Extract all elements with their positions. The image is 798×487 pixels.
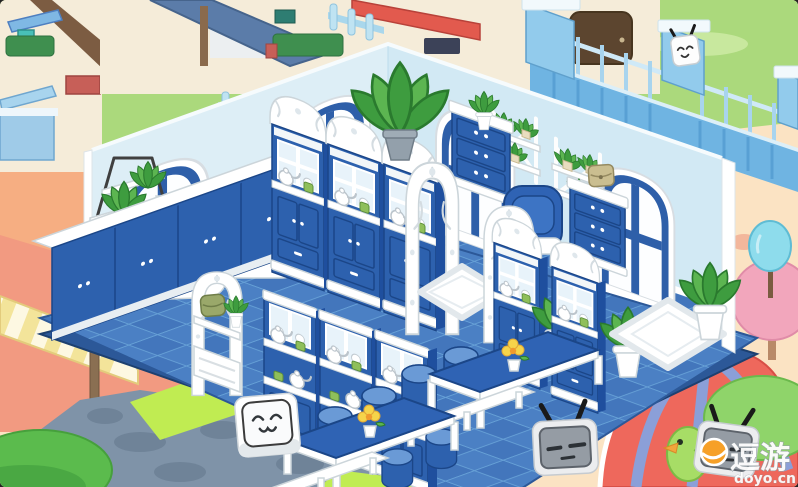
stool[interactable]: [382, 449, 413, 487]
game-screenshot: 逗游 doyo.cn: [0, 0, 798, 487]
wall-right-edge: [722, 158, 735, 353]
satchel-bag[interactable]: [200, 294, 226, 317]
watermark-domain: doyo.cn: [734, 471, 796, 487]
planter-box: [266, 44, 277, 58]
hedge: [6, 36, 54, 56]
satchel-bag[interactable]: [588, 164, 614, 187]
scene-canvas: 逗游 doyo.cn: [0, 0, 798, 487]
gate-pillar: [774, 66, 798, 129]
hedge: [273, 34, 343, 56]
mascot-happy-cube[interactable]: [234, 393, 301, 458]
